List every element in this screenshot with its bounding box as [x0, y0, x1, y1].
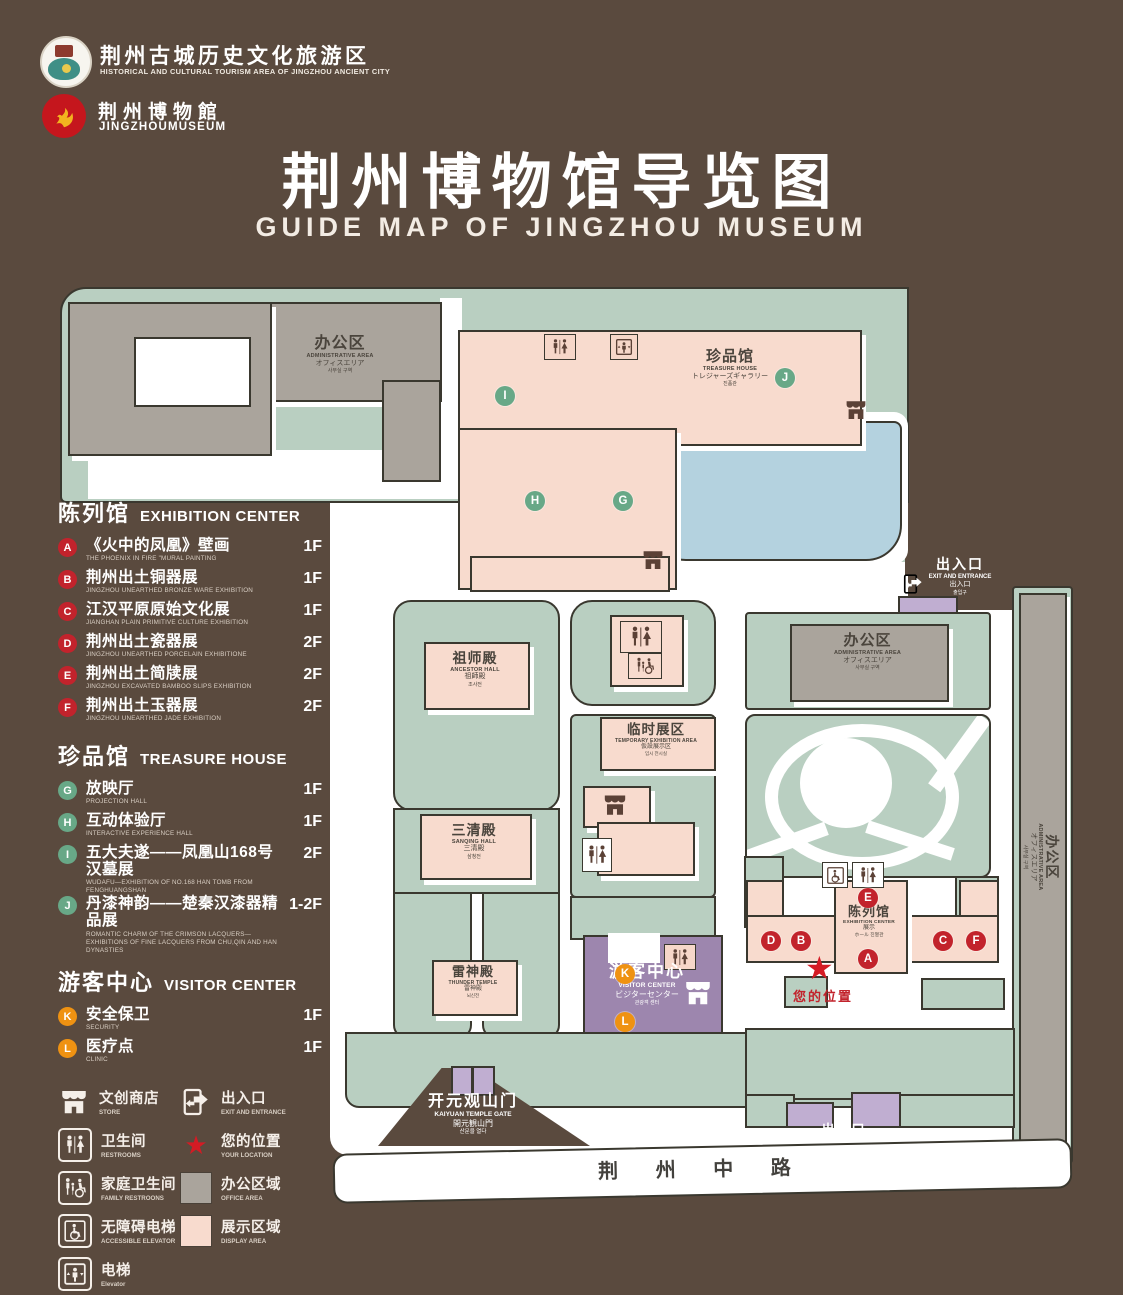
badge-D: D [58, 634, 77, 653]
legend-item-H: H 互动体验厅INTERACTIVE EXPERIENCE HALL 1F [58, 812, 330, 844]
badge-H: H [58, 813, 77, 832]
store-icon [602, 792, 628, 818]
marker-K: K [615, 964, 635, 984]
store-icon [58, 1086, 90, 1118]
badge-F: F [58, 698, 77, 717]
restrooms-icon [586, 844, 608, 866]
marker-H: H [525, 491, 545, 511]
legend-symbols: 文创商店STORE 卫生间RESTROOMS 家庭卫生间FAMILY RESTR… [58, 1080, 330, 1295]
accessible-elevator-icon [826, 866, 845, 885]
accessible-elevator-chip [822, 862, 848, 888]
badge-B: B [58, 570, 77, 589]
badge-G: G [58, 781, 77, 800]
tourism-area-logo [40, 36, 92, 88]
admin-mid-label: 办公区 ADMINISTRATIVE AREA オフィスエリア 사무실 구역 [800, 632, 935, 671]
restrooms-chip [852, 862, 884, 888]
restrooms-chip [582, 838, 612, 872]
page-title: 荆州博物馆导览图 [0, 134, 1123, 221]
restrooms-icon [58, 1128, 92, 1162]
guide-map-page: { "header": { "tourism_cn": "荆州古城历史文化旅游区… [0, 0, 1123, 1280]
symbol-family-restroom: 家庭卫生间FAMILY RESTROONS [58, 1166, 180, 1209]
exit-label-north: 出入口 EXIT AND ENTRANCE 出入口 출입구 [924, 556, 996, 596]
family-restroom-icon [633, 656, 657, 676]
museum-logo [42, 94, 86, 138]
gate-label: 开元观山门 KAIYUAN TEMPLE GATE 開元観山門 산문을 열다 [398, 1092, 548, 1135]
marker-G: G [613, 491, 633, 511]
marker-C: C [933, 931, 953, 951]
store-chip [600, 791, 630, 819]
elevator-icon [615, 338, 633, 356]
legend-item-L: L 医疗点CLINIC 1F [58, 1038, 330, 1070]
symbol-store: 文创商店STORE [58, 1080, 180, 1123]
item-cn: 《火中的凤凰》壁画 [86, 537, 230, 554]
family-restroom-icon [58, 1171, 92, 1205]
symbol-your-location: ★ 您的位置YOUR LOCATION [180, 1123, 330, 1166]
restrooms-icon [857, 866, 879, 885]
store-chip [843, 396, 869, 424]
badge-L: L [58, 1039, 77, 1058]
badge-E: E [58, 666, 77, 685]
restrooms-icon [550, 338, 570, 356]
tourism-area-title: 荆州古城历史文化旅游区 [100, 40, 370, 70]
marker-B: B [791, 931, 811, 951]
elevator-chip [610, 334, 638, 360]
garden-pond-blob [800, 738, 892, 828]
item-floor: 1F [303, 538, 322, 556]
legend-item-I: I 五大夫遂——凤凰山168号汉墓展WUDAFU—EXHIBITION OF N… [58, 844, 330, 895]
symbol-restrooms: 卫生间RESTROOMS [58, 1123, 180, 1166]
section-title-en: EXHIBITION CENTER [140, 508, 300, 525]
your-location-star: ★ [805, 952, 834, 984]
legend-item-G: G 放映厅PROJECTION HALL 1F [58, 780, 330, 812]
restrooms-icon [627, 625, 655, 649]
marker-L: L [615, 1012, 635, 1032]
display-area-swatch [180, 1215, 212, 1247]
legend-item-J: J 丹漆神韵——楚秦汉漆器精品展ROMANTIC CHARM OF THE CR… [58, 895, 330, 955]
lawn-exh-se [921, 978, 1005, 1010]
legend-item-E: E 荆州出土简牍展JINGZHOU EXCAVATED BAMBOO SLIPS… [58, 665, 330, 697]
badge-A: A [58, 538, 77, 557]
exhibition-center-label: 陈列馆 EXHIBITION CENTER 展示 ホール 진열관 [827, 904, 911, 938]
legend-item-F: F 荆州出土玉器展JINGZHOU UNEARTHED JADE EXHIBIT… [58, 697, 330, 729]
legend-panel: 陈列馆 EXHIBITION CENTER A 《火中的凤凰》壁画THE PHO… [58, 496, 330, 1295]
legend-item-K: K 安全保卫SECURITY 1F [58, 1006, 330, 1038]
marker-D: D [761, 931, 781, 951]
item-en: THE PHOENIX IN FIRE "MURAL PAINTING [86, 555, 230, 563]
admin-courtyard [134, 337, 251, 407]
lawn-exit-stub-east [893, 1094, 1015, 1128]
tourism-area-subtitle: HISTORICAL AND CULTURAL TOURISM AREA OF … [100, 67, 390, 76]
lawn-forecourt-east [745, 1028, 1015, 1100]
admin-building-wing [382, 380, 441, 482]
badge-K: K [58, 1007, 77, 1026]
badge-I: I [58, 845, 77, 864]
logo-sun-shape [62, 64, 71, 73]
visitor-center-label: 游客中心 VISITOR CENTER ビジターセンター 관광객 센터 [592, 962, 702, 1006]
legend-item-D: D 荆州出土瓷器展JINGZHOU UNEARTHED PORCELAIN EX… [58, 633, 330, 665]
store-icon [844, 397, 868, 423]
marker-E: E [858, 888, 878, 908]
badge-J: J [58, 896, 77, 915]
marker-I: I [495, 386, 515, 406]
legend-item-A: A 《火中的凤凰》壁画THE PHOENIX IN FIRE "MURAL PA… [58, 537, 330, 569]
legend-section-visitor: 游客中心 VISITOR CENTER [58, 965, 330, 997]
store-chip [640, 546, 666, 574]
symbol-exit-entrance: 出入口EXIT AND ENTRANCE [180, 1080, 330, 1123]
thunder-temple-label: 雷神殿 THUNDER TEMPLE 雷神殿 뇌신전 [432, 964, 514, 998]
restrooms-chip [544, 334, 576, 360]
location-star-icon: ★ [180, 1132, 212, 1158]
symbol-display-area: 展示区域DISPLAY AREA [180, 1209, 330, 1252]
restrooms-chip [620, 621, 662, 653]
section-title-cn: 陈列馆 [58, 496, 130, 528]
family-restroom-chip [628, 653, 662, 679]
symbol-elevator: 电梯Elevator [58, 1252, 180, 1295]
admin-area-label: 办公区 ADMINISTRATIVE AREA オフィスエリア 사무실 구역 [285, 334, 395, 374]
legend-section-treasure: 珍品馆 TREASURE HOUSE [58, 739, 330, 771]
store-icon [641, 547, 665, 573]
exit-entrance-icon [180, 1086, 212, 1118]
visitor-center-notch [608, 933, 660, 963]
symbol-accessible-elevator: 无障碍电梯ACCESSIBLE ELEVATOR [58, 1209, 180, 1252]
admin-east-label: 办公区 ADMINISTRATIVE AREA オフィスエリア 사무실 구역 [1022, 775, 1060, 939]
museum-logo-subtitle: JINGZHOUMUSEUM [99, 121, 226, 133]
exit-entrance-icon [902, 572, 924, 596]
temporary-exhibition-label: 临时展区 TEMPORARY EXHIBITION AREA 仮設展示区 임시 … [600, 722, 712, 757]
ancestor-hall-label: 祖师殿 ANCESTOR HALL 祖師殿 조사전 [424, 650, 526, 688]
phoenix-icon [49, 101, 79, 131]
marker-A: A [858, 949, 878, 969]
symbol-office-area: 办公区域OFFICE AREA [180, 1166, 330, 1209]
legend-item-B: B 荆州出土铜器展JINGZHOU UNEARTHED BRONZE WARE … [58, 569, 330, 601]
your-location-label: 您的位置 [793, 986, 893, 1005]
marker-J: J [775, 368, 795, 388]
accessible-elevator-icon [58, 1214, 92, 1248]
office-area-swatch [180, 1172, 212, 1204]
legend-item-C: C 江汉平原原始文化展JIANGHAN PLAIN PRIMITIVE CULT… [58, 601, 330, 633]
garden [745, 714, 991, 878]
page-subtitle: GUIDE MAP OF JINGZHOU MUSEUM [0, 212, 1123, 243]
elevator-icon [58, 1257, 92, 1291]
marker-F: F [966, 931, 986, 951]
logo-tower-shape [55, 45, 73, 57]
badge-C: C [58, 602, 77, 621]
museum-logo-title: 荆州博物館 [98, 97, 223, 124]
sanqing-hall-label: 三清殿 SANQING HALL 三清殿 삼청전 [420, 822, 528, 860]
legend-section-exhibition: 陈列馆 EXHIBITION CENTER [58, 496, 330, 528]
